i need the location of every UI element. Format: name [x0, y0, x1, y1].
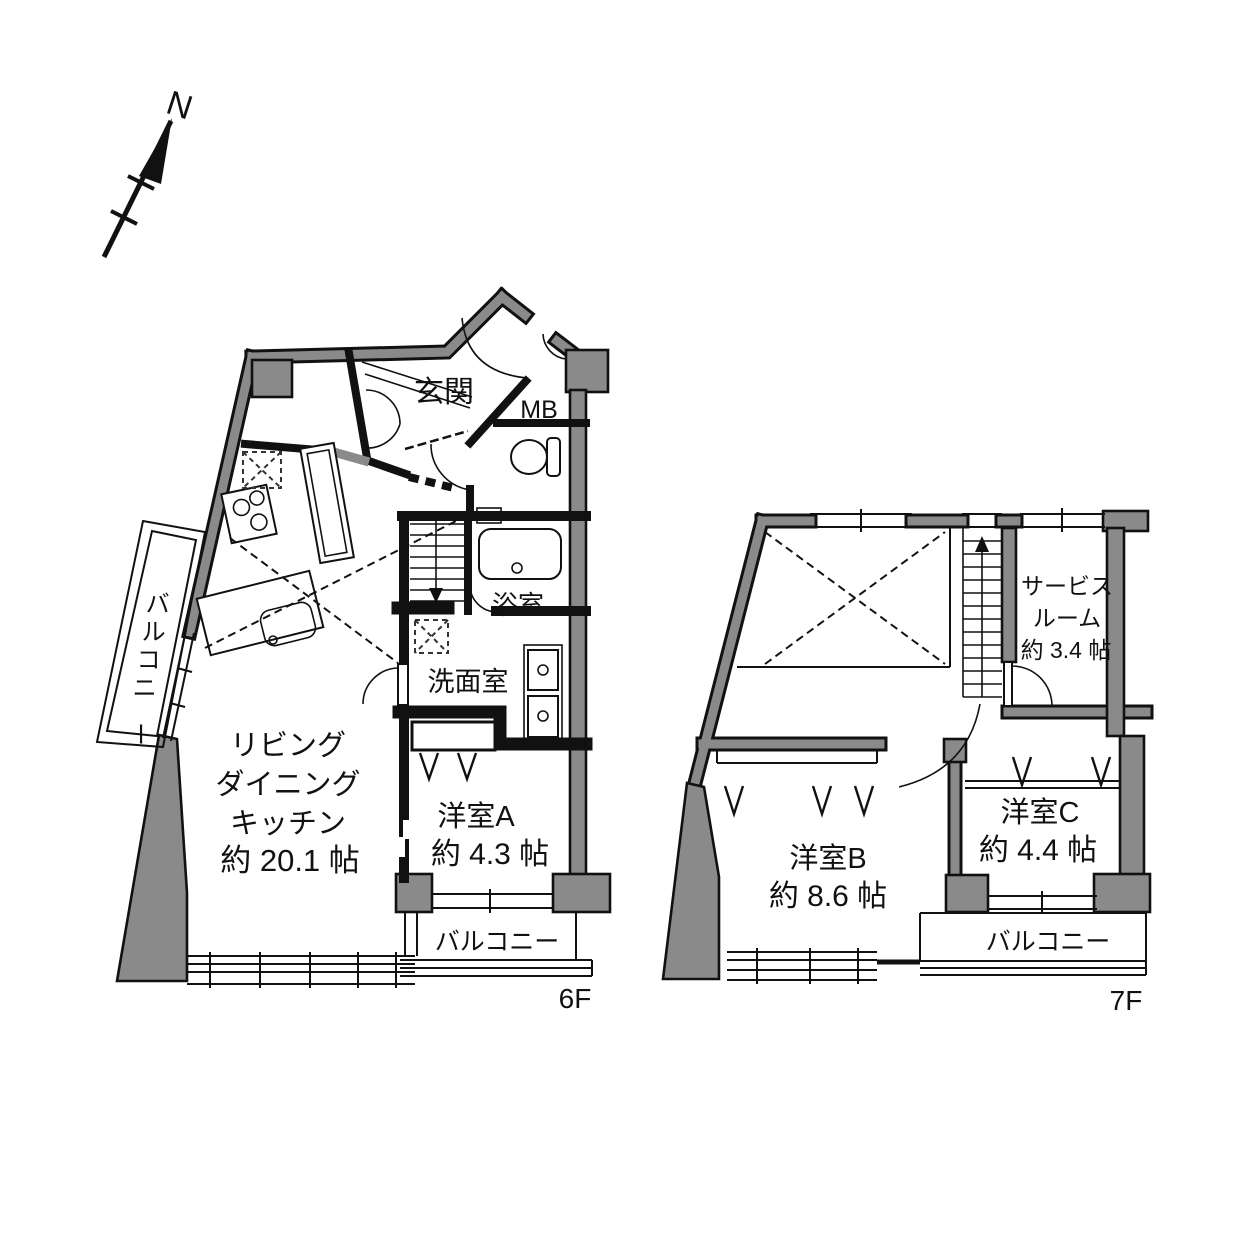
label-room-a: 洋室A — [437, 800, 515, 833]
vanity-sinks — [524, 645, 562, 742]
floorplan-drawing: N — [0, 0, 1252, 1252]
label-room-a-size: 約 4.3 帖 — [431, 838, 549, 871]
label-bathroom: 浴室 — [492, 590, 544, 620]
label-floor-7f: 7F — [1110, 985, 1143, 1016]
label-service-room-size: 約 3.4 帖 — [1021, 637, 1112, 663]
label-balcony-bottom-6f: バルコニー — [435, 928, 560, 956]
floor7-doors — [899, 662, 1052, 787]
label-room-b-size: 約 8.6 帖 — [769, 880, 887, 913]
kitchen-island — [300, 443, 354, 563]
floor6-stairs — [410, 521, 464, 603]
label-floor-6f: 6F — [559, 983, 592, 1014]
north-label: N — [162, 84, 197, 128]
label-service-room-1: サービス — [1021, 573, 1113, 599]
stove-icon — [221, 485, 276, 543]
floor7-void — [737, 528, 950, 667]
label-ldk-3: キッチン — [230, 808, 346, 840]
label-room-b: 洋室B — [789, 842, 866, 875]
room-a-closet — [412, 722, 495, 779]
floorplan-page: N — [0, 0, 1252, 1252]
label-entrance: 玄関 — [414, 376, 474, 409]
north-arrow: N — [104, 84, 197, 257]
label-ldk-2: ダイニング — [215, 768, 360, 801]
label-meter-box: MB — [520, 396, 558, 424]
label-room-c-size: 約 4.4 帖 — [979, 834, 1097, 867]
label-service-room-2: ルーム — [1033, 605, 1101, 631]
kitchen-sink-counter — [197, 571, 324, 655]
label-balcony-7f: バルコニー — [986, 928, 1111, 956]
bathtub-icon — [479, 529, 561, 579]
label-ldk-size: 約 20.1 帖 — [220, 843, 360, 878]
label-ldk-1: リビング — [230, 729, 346, 762]
toilet-icon — [511, 438, 560, 476]
label-washroom: 洗面室 — [428, 667, 509, 697]
label-room-c: 洋室C — [1001, 796, 1080, 829]
floor7-stairs — [963, 528, 1002, 697]
